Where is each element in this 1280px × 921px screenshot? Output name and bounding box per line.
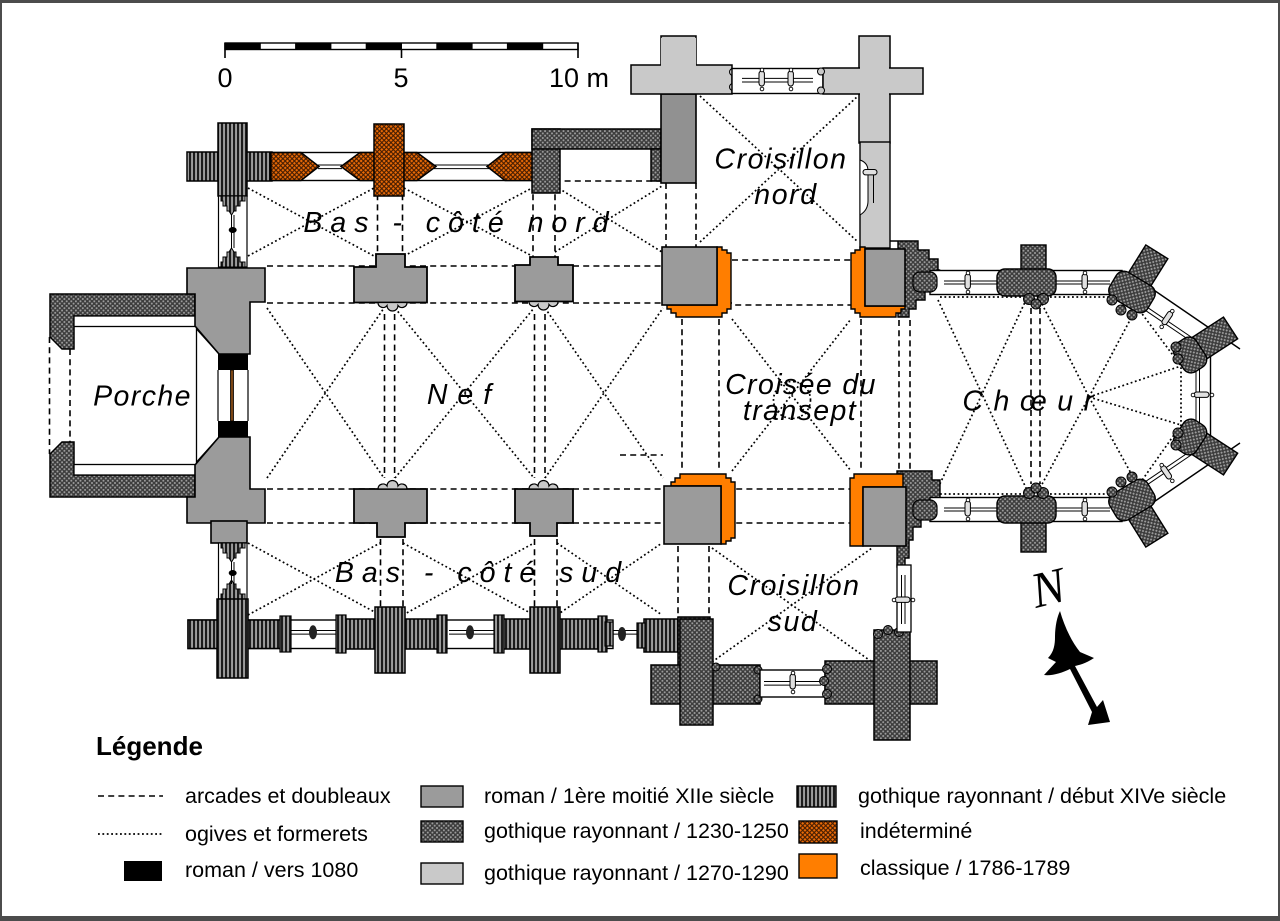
svg-text:5: 5	[393, 63, 408, 93]
svg-text:Bas - côté sud: Bas - côté sud	[335, 557, 629, 589]
svg-text:Nef: Nef	[427, 379, 501, 411]
svg-text:Porche: Porche	[93, 381, 192, 413]
svg-text:arcades et doubleaux: arcades et doubleaux	[185, 784, 391, 808]
svg-text:Croisillon: Croisillon	[714, 144, 847, 176]
svg-text:sud: sud	[768, 606, 819, 638]
svg-text:Croisillon: Croisillon	[727, 570, 860, 602]
svg-text:nord: nord	[754, 179, 817, 211]
svg-text:gothique rayonnant / 1270-1290: gothique rayonnant / 1270-1290	[484, 861, 789, 885]
svg-text:gothique rayonnant / 1230-1250: gothique rayonnant / 1230-1250	[484, 819, 789, 843]
svg-text:roman / 1ère moitié XIIe siècl: roman / 1ère moitié XIIe siècle	[484, 784, 774, 808]
svg-text:roman / vers 1080: roman / vers 1080	[185, 858, 358, 882]
svg-text:Légende: Légende	[96, 731, 203, 761]
svg-text:0: 0	[217, 63, 232, 93]
svg-text:ogives et formerets: ogives et formerets	[185, 822, 368, 846]
svg-text:10 m: 10 m	[549, 63, 609, 93]
svg-text:transept: transept	[743, 395, 857, 427]
svg-text:classique / 1786-1789: classique / 1786-1789	[860, 856, 1070, 880]
svg-text:gothique rayonnant / début XIV: gothique rayonnant / début XIVe siècle	[858, 784, 1226, 808]
svg-text:Chœur: Chœur	[962, 386, 1103, 418]
svg-text:Bas - côté nord: Bas - côté nord	[303, 207, 616, 239]
svg-text:indéterminé: indéterminé	[860, 819, 972, 843]
